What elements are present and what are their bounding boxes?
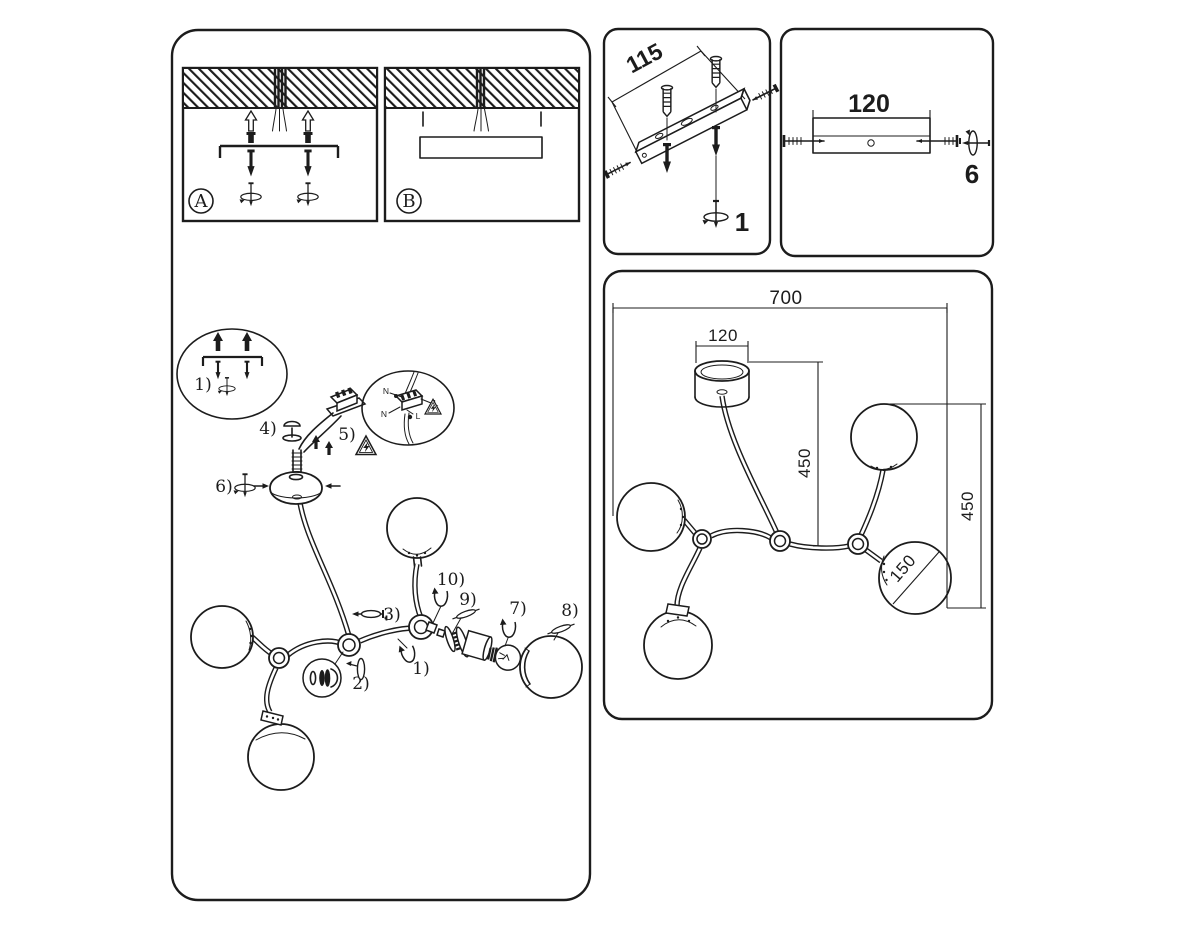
step-5-label: 5) bbox=[338, 425, 355, 445]
glass-globe bbox=[191, 606, 253, 668]
glass-globe bbox=[520, 636, 582, 698]
instruction-drawing: A B 1) bbox=[0, 0, 1200, 933]
screw-down-icon bbox=[245, 361, 250, 380]
inset-step-label: 1) bbox=[194, 375, 211, 395]
inset-oval bbox=[177, 329, 287, 419]
screw-rotate-icon bbox=[297, 183, 319, 206]
screw-down-icon bbox=[712, 126, 720, 156]
wire-neutral-bottom-label: N bbox=[381, 409, 387, 419]
mount-option-b-diagram: B bbox=[385, 68, 579, 221]
rotate-icon bbox=[500, 619, 516, 638]
wall-plug-icon bbox=[662, 86, 673, 117]
side-screw-right bbox=[751, 84, 779, 104]
step-4-label: 4) bbox=[259, 419, 276, 439]
step-9-label: 9) bbox=[459, 590, 476, 610]
wire-neutral-top-label: N bbox=[383, 386, 389, 396]
screw-rotate-icon bbox=[703, 201, 729, 228]
anchor-up-arrow-icon bbox=[246, 111, 257, 131]
ring-connector bbox=[338, 634, 360, 656]
step-7-label: 7) bbox=[509, 599, 526, 619]
fixture-side-view bbox=[617, 361, 951, 679]
dimension-120: 120 bbox=[696, 326, 748, 363]
mounting-bracket bbox=[203, 357, 262, 366]
mounting-bracket-3d bbox=[599, 75, 780, 181]
canopy-install-panel: 120 6 bbox=[781, 29, 993, 256]
dimension-120-label: 120 bbox=[848, 90, 890, 118]
dimension-115-label: 115 bbox=[622, 38, 667, 78]
mounting-plate-b bbox=[420, 137, 542, 158]
screw-down-icon bbox=[304, 150, 311, 177]
screw-horizontal-icon bbox=[352, 610, 387, 621]
electrical-warning-icon bbox=[356, 436, 376, 455]
anchor-up-arrow-icon bbox=[303, 111, 314, 131]
wall-plug-icon bbox=[711, 57, 722, 88]
screw-rotate-icon bbox=[234, 474, 256, 497]
step-1-label: 1) bbox=[412, 659, 429, 679]
screw-down-icon bbox=[247, 150, 254, 177]
assembly-diagram: 1) 4) bbox=[177, 329, 582, 790]
step-6-number: 6 bbox=[965, 159, 979, 189]
step-8-label: 8) bbox=[561, 601, 578, 621]
ring-connector bbox=[693, 530, 711, 548]
canopy-bracket-side bbox=[813, 118, 930, 153]
screw-rotate-icon bbox=[240, 183, 262, 206]
wire-live-bottom-label: L bbox=[416, 411, 421, 421]
ring-connector bbox=[848, 534, 868, 554]
dimension-450-center-label: 450 bbox=[795, 448, 814, 478]
step-10-label: 10) bbox=[437, 570, 465, 590]
glass-globe bbox=[644, 611, 712, 679]
ring-connector bbox=[770, 531, 790, 551]
glass-globe bbox=[617, 483, 685, 551]
hanger-hooks-b bbox=[423, 112, 541, 126]
dimension-700-label: 700 bbox=[769, 288, 802, 309]
wiring-inset: N L N L bbox=[362, 371, 454, 445]
ceiling-hatch-b bbox=[385, 68, 579, 108]
main-panel-border bbox=[172, 30, 590, 900]
instruction-sheet: A B 1) bbox=[0, 0, 1200, 933]
glass-globe bbox=[387, 498, 447, 558]
main-panel: A B 1) bbox=[172, 30, 590, 900]
dimension-450-center: 450 bbox=[749, 362, 823, 546]
wall-plug-a-right bbox=[304, 132, 313, 143]
screw-rotate-icon bbox=[218, 378, 235, 396]
socket-exploded-view bbox=[426, 622, 523, 672]
dimension-120-label: 120 bbox=[708, 326, 738, 345]
anchor-up-arrow-icon bbox=[213, 332, 223, 351]
step-1-number: 1 bbox=[735, 207, 749, 237]
bracket-fixing-inset: 1) bbox=[177, 329, 287, 419]
socket-detail-inset bbox=[303, 652, 343, 697]
ceiling-canopy bbox=[270, 472, 322, 504]
side-screw-right bbox=[917, 135, 960, 147]
step-6-label: 6) bbox=[215, 477, 232, 497]
rotate-icon bbox=[432, 588, 448, 607]
dimension-450-right-label: 450 bbox=[958, 491, 977, 521]
step-3-label: 3) bbox=[383, 605, 400, 625]
glass-globe bbox=[851, 404, 917, 470]
wire-up-arrow-icon bbox=[325, 441, 333, 455]
bracket-install-panel: 115 bbox=[599, 29, 780, 254]
thumbscrew-icon bbox=[283, 422, 301, 442]
ring-connector bbox=[269, 648, 289, 668]
side-screw-left bbox=[603, 159, 632, 179]
option-a-label: A bbox=[194, 191, 209, 212]
glass-globe bbox=[248, 724, 314, 790]
wall-plug-a-left bbox=[247, 132, 256, 143]
side-screw-left bbox=[781, 135, 824, 147]
dimensions-panel: 700 120 450 450 150 bbox=[604, 271, 992, 719]
screw-rotate-icon bbox=[962, 130, 989, 156]
option-b-label: B bbox=[402, 191, 415, 212]
anchor-up-arrow-icon bbox=[242, 332, 252, 351]
mount-option-a-diagram: A bbox=[183, 68, 377, 221]
mounting-bracket-a bbox=[220, 146, 338, 158]
ceiling-hatch-a bbox=[183, 68, 377, 108]
washer-icon bbox=[547, 622, 576, 637]
mains-wires-a bbox=[273, 68, 287, 131]
screw-down-icon bbox=[216, 361, 221, 380]
